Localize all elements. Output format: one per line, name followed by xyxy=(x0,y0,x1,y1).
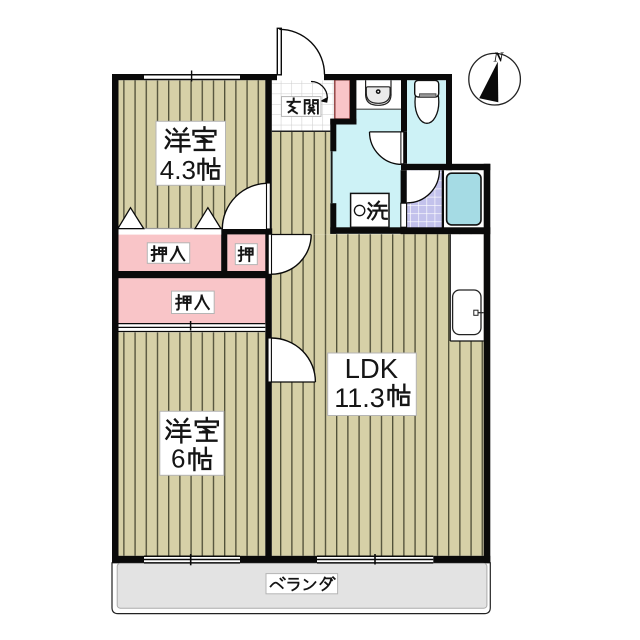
svg-text:4.3: 4.3 xyxy=(160,155,196,185)
svg-text:LDK: LDK xyxy=(345,353,399,384)
svg-text:N: N xyxy=(493,50,505,65)
svg-text:6: 6 xyxy=(171,444,185,474)
svg-text:11.3: 11.3 xyxy=(334,383,385,413)
